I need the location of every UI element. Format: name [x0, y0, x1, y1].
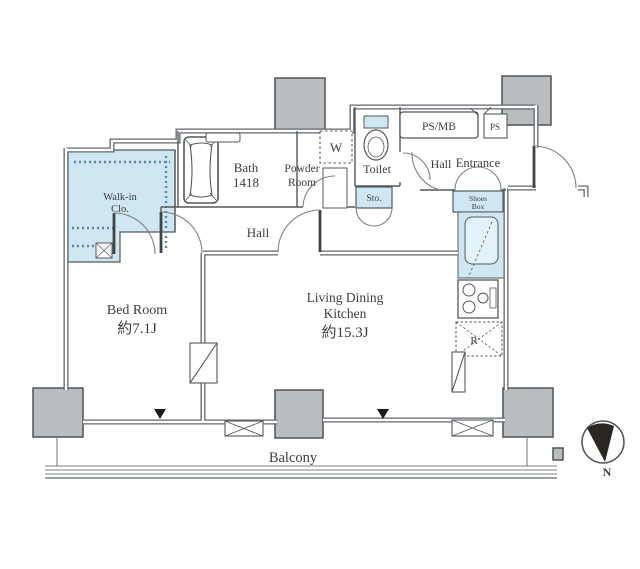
stove — [458, 280, 498, 318]
powder-room-label-1: Powder — [284, 163, 319, 175]
shoes-box-door-right-arc — [478, 167, 501, 190]
bath-label: Bath — [234, 160, 259, 175]
walk-in-vent-box — [96, 243, 112, 258]
hall-center-label: Hall — [247, 225, 270, 240]
kitchen-sink — [465, 217, 498, 264]
compass: N — [582, 421, 624, 479]
window-marker-bedroom — [154, 409, 166, 419]
entrance-label: Entrance — [456, 156, 501, 170]
entrance-door-arc — [534, 146, 576, 188]
toilet-fixture — [364, 130, 388, 160]
refrigerator-space — [456, 322, 502, 356]
bathtub — [184, 137, 218, 203]
toilet-door-arc — [403, 153, 430, 180]
shoes-box-door-left-arc — [455, 167, 478, 190]
ldk-label-1: Living Dining — [307, 290, 384, 305]
pillar-top-right — [502, 76, 551, 125]
shoes-box-label-2: Box — [472, 202, 485, 211]
storage-label: Sto. — [366, 194, 381, 204]
walk-in-closet-label-1: Walk-in — [103, 192, 137, 203]
ps-mb-label: PS/MB — [422, 121, 456, 133]
floor-plan-svg: N Walk-in Clo. Bath 1418 Powder Room W T… — [0, 0, 640, 569]
bath-size-label: 1418 — [233, 175, 259, 190]
ldk-label-2: Kitchen — [324, 306, 367, 321]
storage-door-right-arc — [374, 208, 392, 226]
hall-upper-label: Hall — [431, 157, 452, 171]
ldk-door-arc — [278, 210, 320, 252]
ldk-size-label: 約15.3J — [321, 324, 368, 341]
toilet-label: Toilet — [363, 162, 391, 176]
pillar-bottom-left — [33, 388, 83, 437]
walk-in-closet-label-2: Clo. — [111, 204, 129, 215]
bedroom-size-label: 約7.1J — [117, 320, 157, 337]
toilet-tank — [364, 116, 388, 128]
washer-label: W — [330, 140, 343, 155]
pillar-stub — [553, 448, 563, 460]
floor-plan: N Walk-in Clo. Bath 1418 Powder Room W T… — [0, 0, 640, 569]
powder-room-label-2: Room — [288, 177, 316, 189]
storage-door-left-arc — [356, 208, 374, 226]
pillar-bottom-right — [503, 388, 553, 437]
ps-label: PS — [490, 122, 500, 132]
bath-counter — [206, 133, 240, 142]
balcony-label: Balcony — [269, 450, 318, 466]
vanity-cabinet — [323, 168, 347, 208]
compass-north-label: N — [603, 465, 612, 479]
bedroom-label: Bed Room — [107, 303, 167, 318]
cabinets — [190, 343, 465, 392]
pillar-top-center — [275, 78, 325, 130]
pillar-bottom-center — [275, 390, 323, 438]
refrigerator-label: R — [470, 335, 478, 347]
